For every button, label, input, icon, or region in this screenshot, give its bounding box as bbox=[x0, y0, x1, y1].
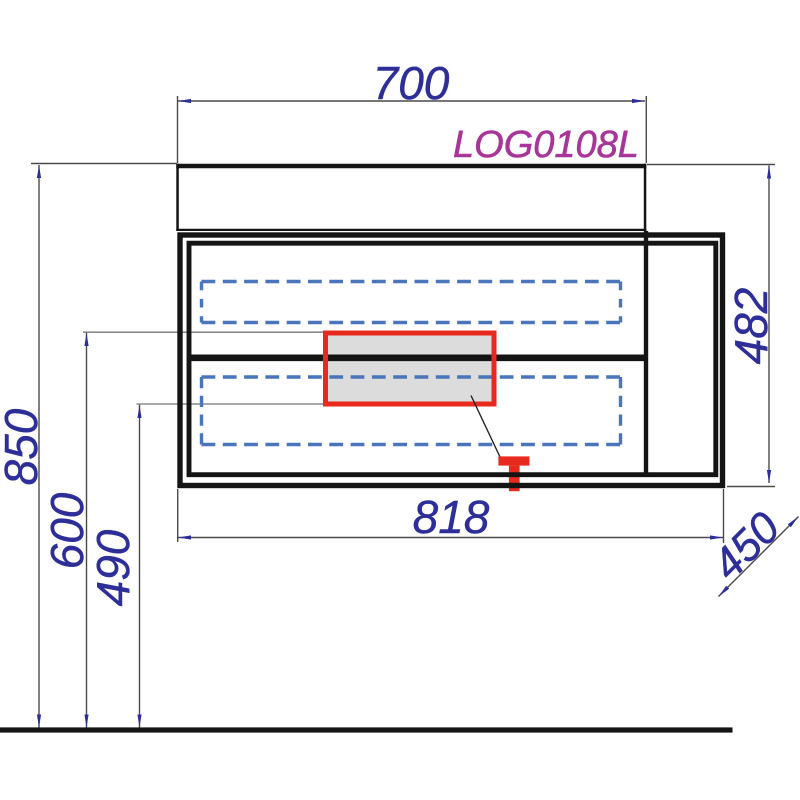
svg-text:490: 490 bbox=[87, 529, 139, 606]
svg-text:482: 482 bbox=[725, 288, 777, 365]
svg-text:850: 850 bbox=[0, 408, 47, 485]
svg-text:700: 700 bbox=[373, 57, 450, 109]
svg-text:LOG0108L: LOG0108L bbox=[453, 124, 639, 166]
svg-text:600: 600 bbox=[41, 492, 93, 569]
svg-text:818: 818 bbox=[413, 491, 490, 543]
